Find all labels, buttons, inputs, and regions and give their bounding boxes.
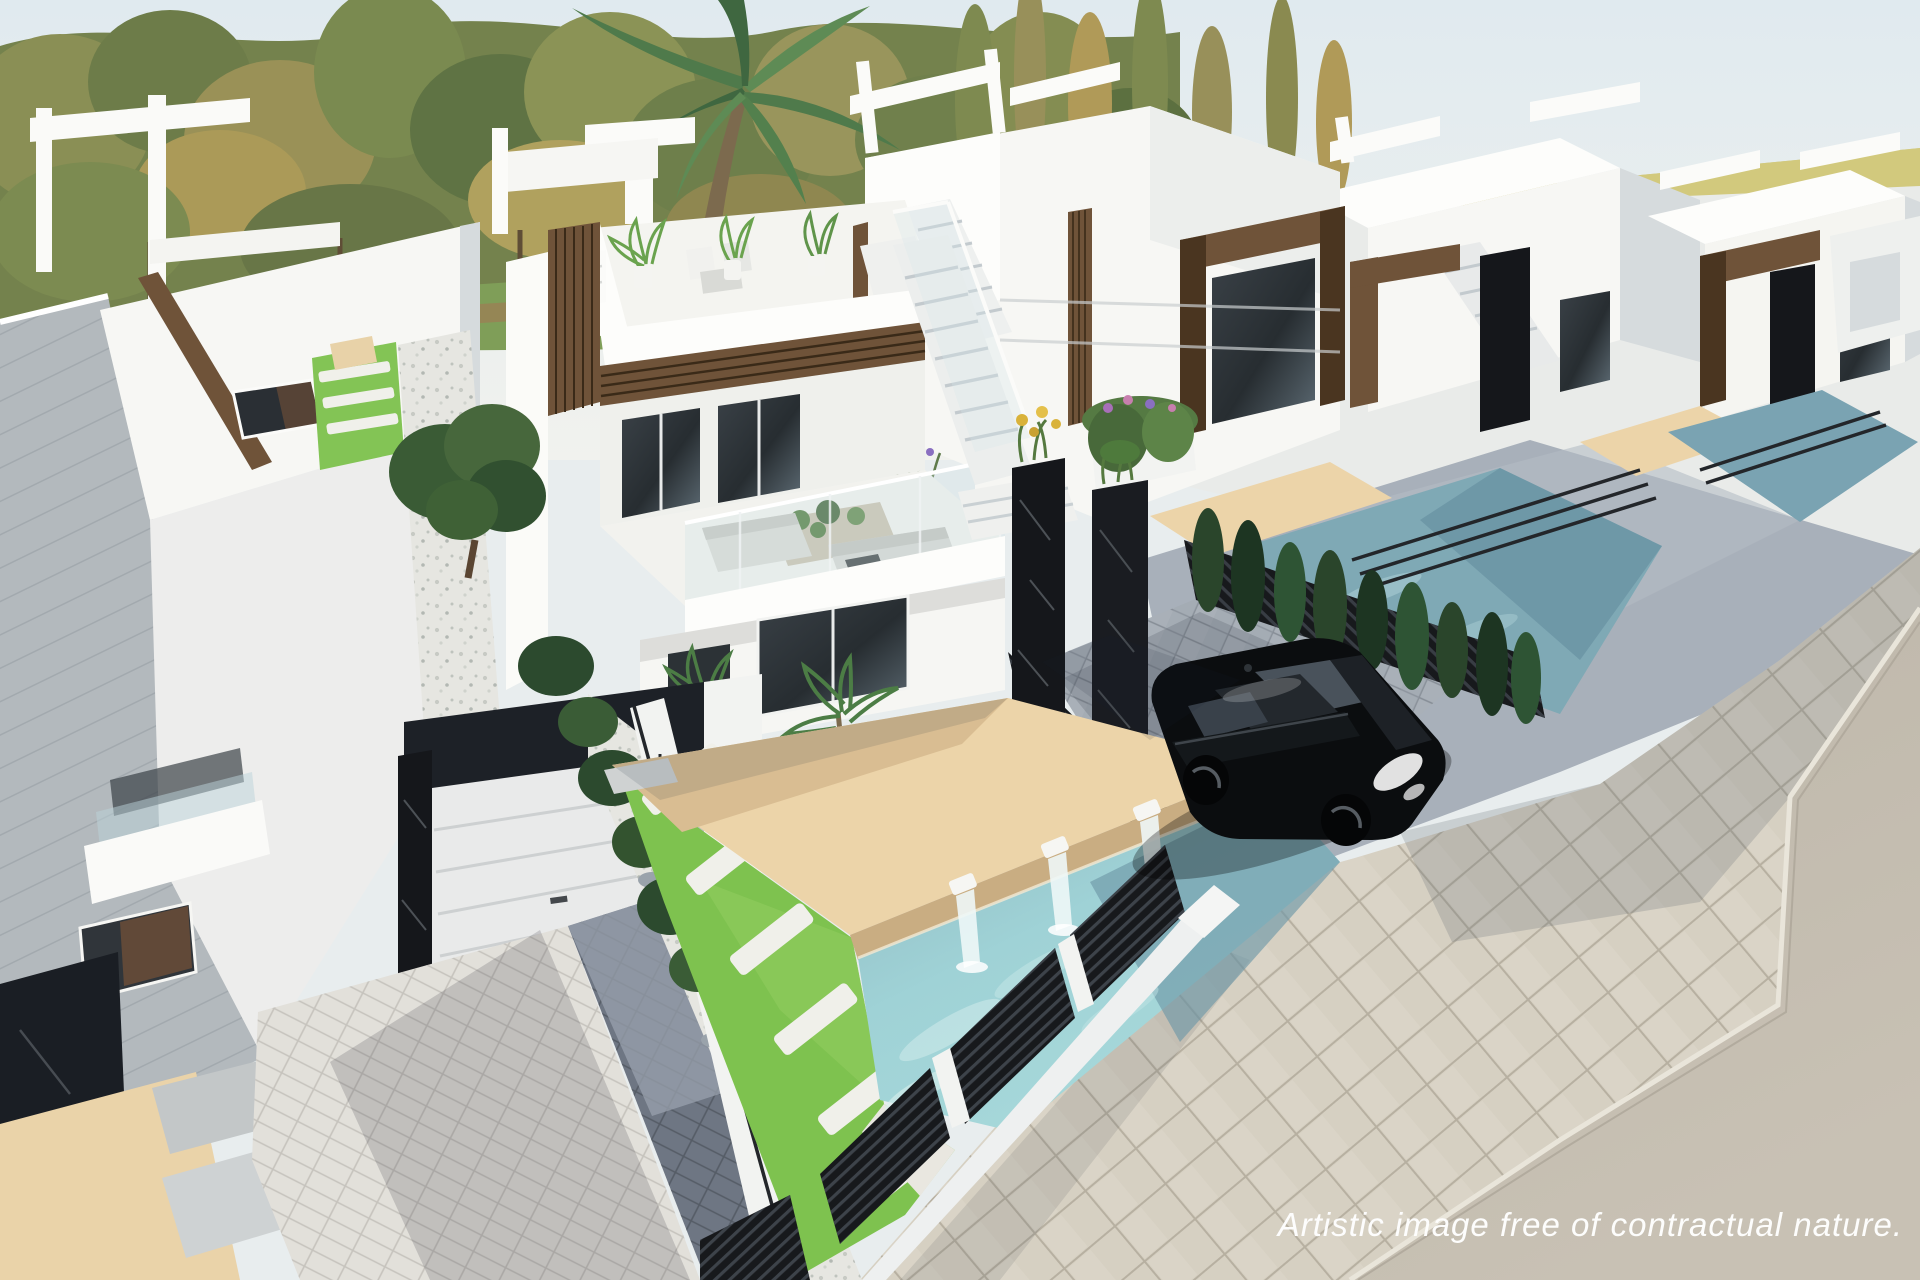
watermark: Artistic image free of contractual natur…	[1276, 1206, 1903, 1243]
watermark-caption: Artistic image free of contractual natur…	[1276, 1206, 1903, 1243]
architectural-render: Artistic image free of contractual natur…	[0, 0, 1920, 1280]
render-canvas: Artistic image free of contractual natur…	[0, 0, 1920, 1280]
slat-wall	[548, 222, 600, 416]
